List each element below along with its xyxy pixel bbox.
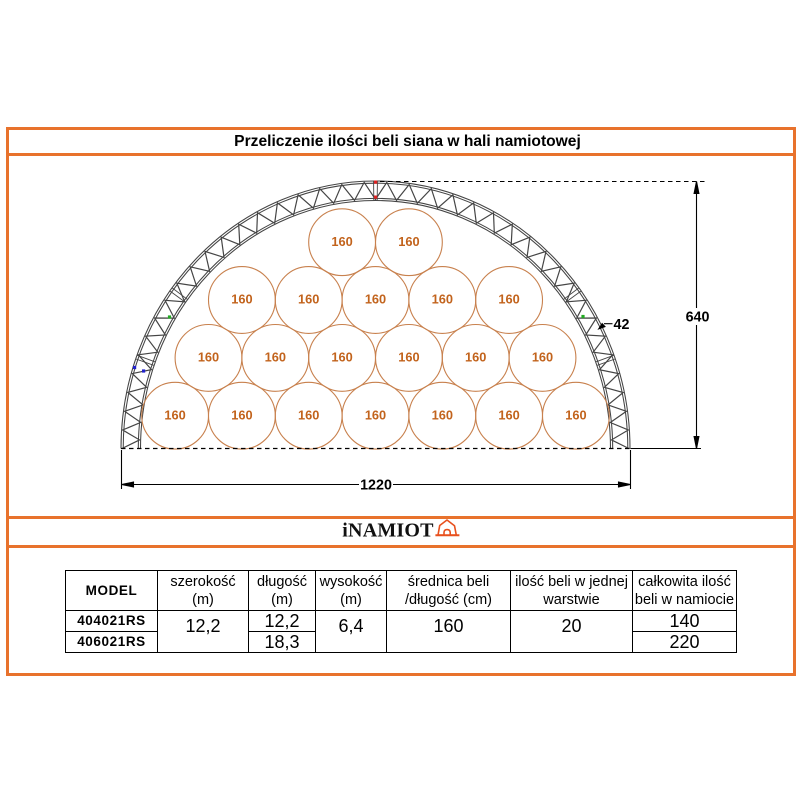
svg-text:160: 160 [231,292,252,307]
svg-text:160: 160 [432,407,453,422]
svg-text:160: 160 [532,350,553,365]
svg-text:160: 160 [432,292,453,307]
svg-text:160: 160 [565,407,586,422]
svg-text:160: 160 [498,407,519,422]
svg-text:160: 160 [365,407,386,422]
svg-text:160: 160 [231,407,252,422]
svg-text:160: 160 [164,407,185,422]
svg-text:160: 160 [298,407,319,422]
svg-text:1220: 1220 [360,478,392,494]
svg-text:160: 160 [365,292,386,307]
svg-text:160: 160 [465,350,486,365]
svg-text:160: 160 [298,292,319,307]
svg-text:640: 640 [686,310,710,326]
svg-text:42: 42 [614,317,630,333]
svg-text:160: 160 [498,292,519,307]
svg-text:160: 160 [398,234,419,249]
svg-text:160: 160 [331,350,352,365]
svg-text:160: 160 [198,350,219,365]
svg-text:160: 160 [398,350,419,365]
svg-text:160: 160 [265,350,286,365]
svg-text:160: 160 [331,234,352,249]
